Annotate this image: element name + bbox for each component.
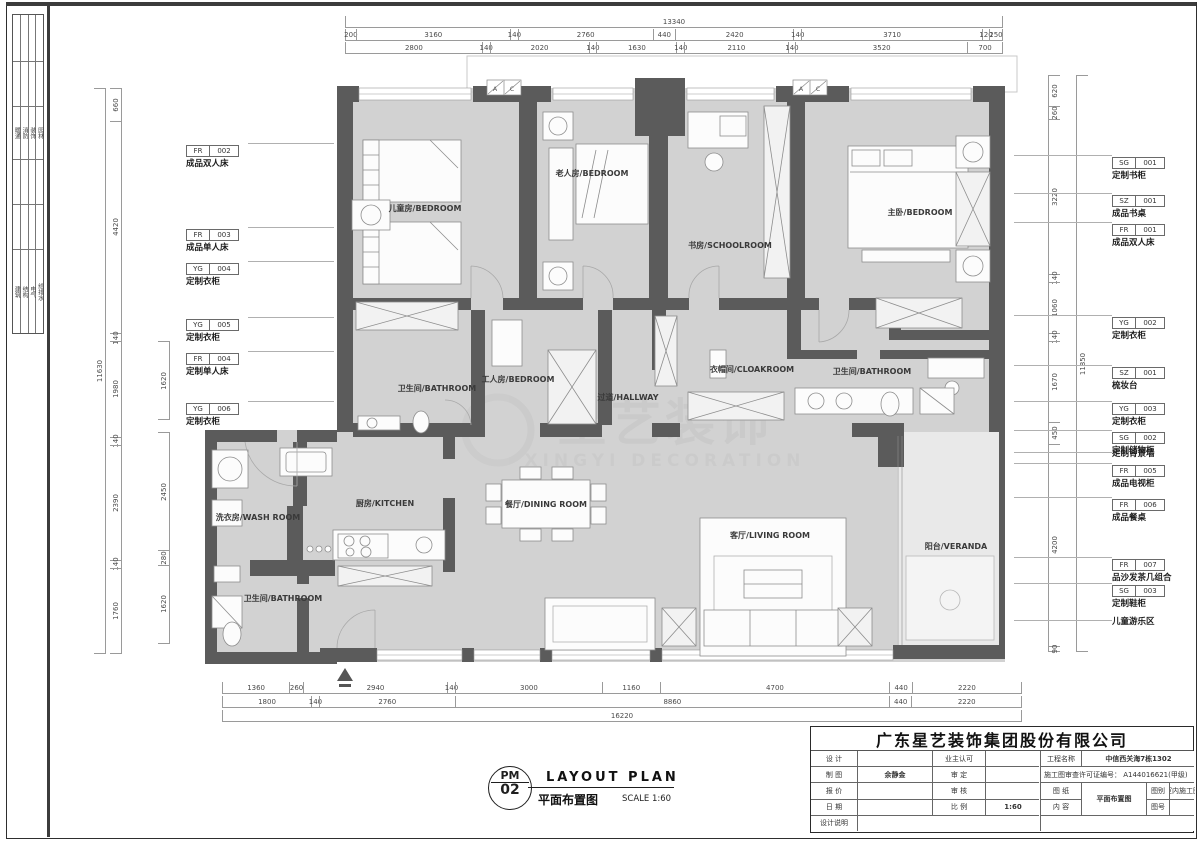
number-value: [1170, 800, 1195, 815]
dim-segment: 140: [676, 42, 684, 53]
stamp-line: [528, 787, 674, 788]
callout-tag: YG003: [1112, 403, 1165, 415]
dim-segment: 140: [110, 560, 121, 568]
scale-value: 1:60: [986, 800, 1040, 815]
review-label: 审 核: [933, 783, 985, 798]
callout-fr004: FR004 定制单人床: [186, 346, 276, 377]
category-value: 室内施工图: [1170, 783, 1195, 798]
sheet-content: 平面布置图: [1082, 783, 1146, 814]
scale-label: 比 例: [933, 800, 985, 815]
dim-segment: 13340: [345, 16, 1003, 27]
dim-segment: 620: [1049, 75, 1060, 106]
callout-yg002: YG002 定制衣柜: [1112, 310, 1198, 341]
dim-segment: 140: [482, 42, 490, 53]
owner-value: [986, 751, 1040, 766]
dim-segment: 440: [889, 682, 911, 693]
dim-top-row1: 2003160140276044024201403710120250: [345, 29, 1003, 41]
sheet-label-2: 内 容: [1041, 800, 1081, 815]
dim-segment: 2220: [911, 696, 1022, 707]
callout-fr006: FR006 成品餐桌: [1112, 492, 1198, 523]
draft-value: 余静金: [858, 767, 932, 782]
stamp-scale: SCALE 1:60: [622, 794, 671, 804]
room-label-wash: 洗衣房/WASH ROOM: [216, 512, 301, 522]
callout-tag: FR001: [1112, 224, 1165, 236]
master-bath-fixtures: [795, 388, 954, 416]
quote-value: [858, 783, 932, 798]
callout-tag: SZ001: [1112, 367, 1165, 379]
project-value: 中信西关海7栋1302: [1082, 751, 1195, 766]
callout-tag: SG002: [1112, 432, 1165, 444]
category-label: 图别: [1147, 783, 1169, 798]
design-label: 设 计: [811, 751, 857, 766]
review-value: [986, 783, 1040, 798]
dim-segment: 3710: [801, 29, 982, 40]
dim-segment: 1160: [602, 682, 660, 693]
dim-bottom-total: 16220: [222, 710, 1022, 722]
dim-top-row2: 28001402020140163014021101403520700: [345, 42, 1003, 54]
dim-segment: 660: [110, 88, 121, 121]
dim-left-inner: 6604420140198014023901401760: [110, 88, 122, 654]
stamp-circle: PM 02: [488, 766, 532, 810]
dim-segment: 3220: [1049, 119, 1060, 274]
room-label-living: 客厅/LIVING ROOM: [729, 530, 810, 540]
dim-segment: 1620: [158, 341, 169, 420]
callout-fr001: FR001 成品双人床: [1112, 217, 1198, 248]
design-value: [858, 751, 932, 766]
date-value: [858, 800, 932, 815]
callout-fr003: FR003 成品单人床: [186, 222, 276, 253]
callout-tag: FR007: [1112, 559, 1165, 571]
dim-segment: 440: [889, 696, 912, 707]
callout-yg004: YG004 定制衣柜: [186, 256, 276, 287]
dim-segment: 2760: [518, 29, 653, 40]
callout-tag: SG003: [1112, 585, 1165, 597]
dim-right-inner: 620260322014010601401670450420090: [1048, 75, 1060, 652]
drawing-sheet: 暖通 消防 装饰 园林 建筑 结构 电气 给排水 星艺装饰 XINGYI DEC…: [0, 0, 1200, 841]
dim-segment: 140: [447, 682, 455, 693]
dim-segment: 3160: [356, 29, 510, 40]
callout-tag: FR005: [1112, 465, 1165, 477]
number-label: 图号: [1147, 800, 1169, 815]
dim-segment: 90: [1049, 646, 1060, 652]
dim-segment: 3520: [795, 42, 967, 53]
dim-segment: 140: [110, 437, 121, 445]
dim-bottom-row1: 136026029401403000116047004402220: [222, 682, 1022, 694]
sheet-label-1: 图 纸: [1041, 783, 1081, 798]
callout-yg006: YG006 定制衣柜: [186, 396, 276, 427]
dim-segment: 260: [289, 682, 303, 693]
approve-label: 审 定: [933, 767, 985, 782]
dim-segment: 1800: [222, 696, 311, 707]
room-label-worker: 工人房/BEDROOM: [482, 374, 555, 384]
drawing-stamp: PM 02 LAYOUT PLAN 平面布置图 SCALE 1:60: [488, 766, 688, 814]
dim-segment: 2940: [303, 682, 447, 693]
dim-segment: 3000: [455, 682, 602, 693]
dim-segment: 2760: [319, 696, 455, 707]
dim-segment: 4420: [110, 121, 121, 334]
dim-segment: 1620: [158, 565, 169, 644]
dim-bottom-row2: 1800140276088604402220: [222, 696, 1022, 708]
quote-label: 报 价: [811, 783, 857, 798]
stamp-title-cn: 平面布置图: [538, 791, 598, 808]
callout-sz001-desk: SZ001 成品书桌: [1112, 188, 1198, 219]
room-label-hallway: 过道/HALLWAY: [597, 392, 658, 402]
callout-tag: SZ001: [1112, 195, 1165, 207]
callout-sz001-dresser: SZ001 梳妆台: [1112, 360, 1198, 391]
dim-segment: 1670: [1049, 341, 1060, 422]
approve-value: [986, 767, 1040, 782]
dim-segment: 11850: [1077, 75, 1088, 652]
dim-segment: 2450: [158, 432, 169, 550]
dim-left-partial-b: 24502801620: [158, 432, 170, 644]
dim-left-total: 11630: [94, 88, 106, 654]
callout-tag: YG002: [1112, 317, 1165, 329]
dim-segment: 250: [989, 29, 1003, 40]
notes-label: 设计说明: [811, 816, 857, 831]
callout-tag: YG004: [186, 263, 239, 275]
callout-yg003: YG003 定制衣柜: [1112, 396, 1198, 427]
callout-fr005: FR005 成品电视柜: [1112, 458, 1198, 489]
dim-right-total: 11850: [1076, 75, 1088, 652]
dim-segment: 140: [1049, 333, 1060, 341]
dim-segment: 1060: [1049, 282, 1060, 334]
room-label-elder: 老人房/BEDROOM: [555, 168, 629, 178]
room-label-kitchen: 厨房/KITCHEN: [356, 498, 414, 508]
dim-segment: 440: [653, 29, 675, 40]
title-block-right: 工程名称 中信西关海7栋1302 施工图审查许可证编号： A144016621(…: [1040, 751, 1194, 831]
callout-kids-play-area: 儿童游乐区: [1112, 615, 1198, 627]
dim-segment: 260: [1049, 106, 1060, 119]
dim-segment: 140: [589, 42, 597, 53]
dim-top-total: 13340: [345, 16, 1003, 28]
room-label-cloak: 衣帽间/CLOAKROOM: [710, 364, 794, 374]
permit-text: 施工图审查许可证编号： A144016621(甲级): [1041, 767, 1195, 782]
callout-tag: FR003: [186, 229, 239, 241]
room-label-bath3: 卫生间/BATHROOM: [244, 593, 323, 603]
callout-tag: YG005: [186, 319, 239, 331]
dim-segment: 1980: [110, 341, 121, 437]
room-label-bath2: 卫生间/BATHROOM: [833, 366, 912, 376]
dim-segment: 1360: [222, 682, 289, 693]
callout-yg005: YG005 定制衣柜: [186, 312, 276, 343]
callout-tag: YG006: [186, 403, 239, 415]
dim-segment: 11630: [94, 88, 105, 654]
room-label-veranda: 阳台/VERANDA: [925, 541, 988, 551]
dim-segment: 1630: [596, 42, 676, 53]
veranda-detail: [906, 556, 994, 640]
room-label-children: 儿童房/BEDROOM: [388, 203, 462, 213]
callout-tag: FR004: [186, 353, 239, 365]
callout-tag: SG001: [1112, 157, 1165, 169]
dim-segment: 2020: [490, 42, 589, 53]
callout-sg003: SG003 定制鞋柜: [1112, 578, 1198, 609]
room-label-bath1: 卫生间/BATHROOM: [398, 383, 477, 393]
dim-segment: 2390: [110, 445, 121, 560]
room-label-study: 书房/SCHOOLROOM: [688, 240, 772, 250]
dim-segment: 140: [311, 696, 319, 707]
project-label: 工程名称: [1041, 751, 1081, 766]
title-block: 广东星艺装饰集团股份有限公司 设 计 业主认可 制 图 余静金 审 定 报 价 …: [810, 726, 1194, 833]
ac-letter-c1: C: [510, 86, 514, 93]
dim-segment: 140: [110, 333, 121, 341]
dim-segment: 2110: [684, 42, 787, 53]
callout-fr002: FR002 成品双人床: [186, 138, 276, 169]
dim-segment: 700: [967, 42, 1003, 53]
dim-segment: 280: [158, 550, 169, 564]
draft-label: 制 图: [811, 767, 857, 782]
owner-label: 业主认可: [933, 751, 985, 766]
dim-segment: 140: [793, 29, 801, 40]
callout-tag: FR006: [1112, 499, 1165, 511]
date-label: 日 期: [811, 800, 857, 815]
callout-sg001: SG001 定制书柜: [1112, 150, 1198, 181]
dim-segment: 1760: [110, 568, 121, 654]
title-block-footer: [1041, 816, 1195, 831]
company-name: 广东星艺装饰集团股份有限公司: [811, 727, 1193, 751]
dim-segment: 2220: [912, 682, 1022, 693]
dim-segment: 120: [982, 29, 989, 40]
room-label-master: 主卧/BEDROOM: [888, 207, 953, 217]
dim-segment: 140: [510, 29, 518, 40]
stamp-title-en: LAYOUT PLAN: [546, 770, 679, 785]
dim-left-partial-a: 1620: [158, 341, 170, 420]
dim-segment: 140: [1049, 274, 1060, 282]
callout-tag: FR002: [186, 145, 239, 157]
dim-segment: 200: [345, 29, 356, 40]
title-block-left: 设 计 业主认可 制 图 余静金 审 定 报 价 审 核 日 期 比 例 1:6…: [811, 751, 1039, 831]
dim-segment: 2800: [345, 42, 482, 53]
dim-segment: 2420: [675, 29, 793, 40]
dim-segment: 4200: [1049, 444, 1060, 646]
dim-segment: 8860: [455, 696, 889, 707]
room-label-dining: 餐厅/DINING ROOM: [504, 499, 587, 509]
dim-segment: 16220: [222, 710, 1022, 721]
dim-segment: 4700: [660, 682, 890, 693]
dim-segment: 140: [788, 42, 796, 53]
ac-letter-c2: C: [816, 86, 820, 93]
dim-segment: 450: [1049, 422, 1060, 445]
notes-value: [858, 816, 1040, 831]
